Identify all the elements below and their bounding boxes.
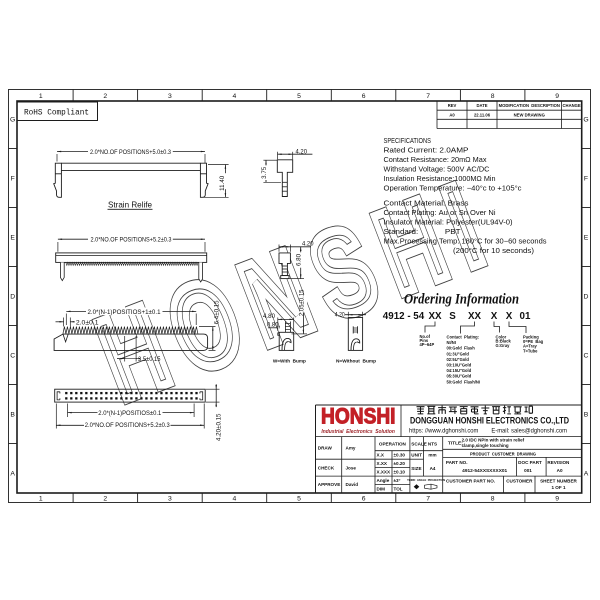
svg-text:Operation Temperature: −40°c t: Operation Temperature: −40°c to +105°c: [384, 184, 522, 193]
svg-text:E: E: [584, 234, 589, 241]
svg-text:5: 5: [297, 496, 301, 503]
svg-text:NTS: NTS: [428, 441, 437, 446]
svg-text:Contact Material: Brass: Contact Material: Brass: [384, 199, 469, 208]
svg-text:SHEET NUMBER: SHEET NUMBER: [540, 479, 577, 484]
svg-text:4912-54XXSXXXX01: 4912-54XXSXXXX01: [462, 468, 507, 473]
svg-text:X.XX: X.XX: [377, 461, 388, 466]
svg-text:Rated Current: 2.0AMP: Rated Current: 2.0AMP: [384, 146, 469, 155]
svg-text:SCALE: SCALE: [411, 441, 427, 446]
svg-text:UNIT: UNIT: [411, 453, 422, 458]
svg-text:F: F: [11, 175, 15, 182]
svg-text:7: 7: [426, 496, 430, 503]
svg-text:Insulation Resistance:1000MΩ M: Insulation Resistance:1000MΩ Min: [384, 174, 496, 183]
svg-text:2.05±0.15: 2.05±0.15: [299, 289, 305, 316]
svg-text:2.0*(N-1)POSITIOS+1±0.1: 2.0*(N-1)POSITIOS+1±0.1: [88, 309, 162, 316]
svg-text:XX: XX: [428, 311, 442, 322]
svg-text:001: 001: [524, 468, 532, 473]
svg-text:F: F: [584, 175, 588, 182]
svg-text:3.75: 3.75: [261, 166, 268, 179]
svg-text:DATE: DATE: [476, 103, 487, 108]
svg-text:THIRD ANGLE PROJECTION: THIRD ANGLE PROJECTION: [407, 478, 445, 482]
svg-text:3: 3: [168, 496, 172, 503]
svg-text:4.20: 4.20: [302, 241, 314, 248]
svg-text:A0: A0: [449, 112, 455, 117]
svg-text:6: 6: [362, 496, 366, 503]
svg-text:C: C: [584, 352, 589, 359]
svg-text:CHECK: CHECK: [318, 465, 335, 470]
svg-text:(200°C for 10 seconds): (200°C for 10 seconds): [453, 246, 534, 255]
svg-text:CUSTOMER PART NO.: CUSTOMER PART NO.: [446, 479, 495, 484]
svg-text:Standard: PBT: Standard: PBT: [384, 227, 462, 236]
svg-text:NI/NI: NI/NI: [447, 340, 456, 345]
svg-text:8: 8: [491, 496, 495, 503]
svg-text:05:30U"Gold: 05:30U"Gold: [447, 374, 472, 379]
svg-text:01:3U"Gold: 01:3U"Gold: [447, 351, 470, 356]
svg-text:Jose: Jose: [346, 465, 357, 470]
svg-text:G: G: [583, 116, 588, 123]
svg-text:5: 5: [297, 93, 301, 100]
svg-text:1: 1: [39, 496, 43, 503]
svg-text:4: 4: [233, 496, 237, 503]
svg-text:50:Gold Flash/Ni: 50:Gold Flash/Ni: [447, 379, 480, 384]
svg-text:A: A: [584, 470, 589, 477]
svg-text:±0.30: ±0.30: [394, 453, 406, 458]
svg-text:NEW DRAWING: NEW DRAWING: [514, 112, 545, 117]
svg-text:3.5±0.15: 3.5±0.15: [138, 356, 161, 363]
svg-text:±0.10: ±0.10: [394, 470, 406, 475]
svg-text:Angle: Angle: [377, 478, 390, 483]
svg-text:00:Gold Flash: 00:Gold Flash: [447, 346, 476, 351]
svg-text:G:Gray: G:Gray: [496, 343, 511, 348]
svg-text:N=Without Bump: N=Without Bump: [336, 358, 376, 363]
svg-text:1: 1: [39, 93, 43, 100]
svg-text:A: A: [10, 470, 15, 477]
svg-text:3: 3: [168, 93, 172, 100]
svg-text:OPERATION: OPERATION: [379, 441, 407, 446]
svg-text:7: 7: [426, 93, 430, 100]
svg-text:2.0*NO.OF POSITIONS+5.0±0.3: 2.0*NO.OF POSITIONS+5.0±0.3: [90, 149, 171, 156]
svg-text:6.4±0.15: 6.4±0.15: [214, 300, 221, 325]
svg-text:2.0*NO.OF POSITIONS+5.2±0.3: 2.0*NO.OF POSITIONS+5.2±0.3: [85, 422, 171, 429]
svg-text:D: D: [10, 293, 15, 300]
svg-text:X: X: [506, 311, 513, 322]
svg-text:PRODUCT CUSTOMER DRAWING: PRODUCT CUSTOMER DRAWING: [470, 451, 536, 456]
svg-text:B: B: [584, 411, 589, 418]
svg-text:2.0*(N-1)POSITIOS±0.1: 2.0*(N-1)POSITIOS±0.1: [98, 411, 162, 417]
svg-text:G: G: [10, 116, 15, 123]
svg-text:B: B: [10, 411, 15, 418]
svg-text:Contact Resistance: 20mΩ Max: Contact Resistance: 20mΩ Max: [384, 155, 487, 164]
svg-text:CHANGE: CHANGE: [563, 103, 581, 108]
svg-text:REVISION: REVISION: [547, 460, 570, 465]
svg-text:SIZE: SIZE: [411, 466, 421, 471]
svg-text:4P~64P: 4P~64P: [420, 342, 435, 347]
svg-text:8: 8: [491, 93, 495, 100]
svg-text:RoHS Compliant: RoHS Compliant: [24, 107, 89, 117]
svg-text:22.11.06: 22.11.06: [474, 112, 491, 117]
svg-text:2.0*NO.OF POSITIONS+5.2±0.3: 2.0*NO.OF POSITIONS+5.2±0.3: [91, 237, 172, 244]
svg-text:Insulator Material: Polyester(: Insulator Material: Polyester(UL94V-0): [384, 218, 513, 227]
svg-text:01: 01: [520, 311, 531, 322]
svg-text:02:5U"Gold: 02:5U"Gold: [447, 357, 470, 362]
svg-text:D: D: [584, 293, 589, 300]
svg-text:9: 9: [555, 93, 559, 100]
svg-text:CUSTOMER: CUSTOMER: [506, 479, 533, 484]
svg-text:2.0±0.1: 2.0±0.1: [76, 319, 99, 326]
svg-text:Withstand Voltage: 500V AC/DC: Withstand Voltage: 500V AC/DC: [384, 165, 490, 174]
svg-text:11.40: 11.40: [219, 175, 226, 191]
svg-text:4.80: 4.80: [263, 314, 276, 320]
svg-text:David: David: [346, 482, 359, 487]
svg-text:Contact Plating:: Contact Plating:: [447, 335, 480, 340]
svg-text:1 OF 1: 1 OF 1: [551, 485, 565, 490]
svg-text:A4: A4: [430, 466, 436, 471]
svg-text:clamp,single touching: clamp,single touching: [462, 443, 509, 448]
svg-text:6: 6: [362, 93, 366, 100]
svg-text:X.XXX: X.XXX: [377, 470, 391, 475]
svg-text:4912 - 54: 4912 - 54: [383, 311, 425, 322]
svg-text:S: S: [449, 311, 456, 322]
svg-text:XX: XX: [468, 311, 482, 322]
svg-text:Ordering Information: Ordering Information: [404, 291, 519, 307]
svg-text:APPROVE: APPROVE: [318, 482, 340, 487]
svg-text:2: 2: [103, 496, 107, 503]
svg-text:2.0 IDC NPin with strain relie: 2.0 IDC NPin with strain relief: [462, 438, 525, 443]
svg-text:Industrial Electronics Solut: Industrial Electronics Solution: [321, 429, 395, 435]
svg-text:REV: REV: [448, 103, 457, 108]
svg-text:TOL: TOL: [394, 486, 403, 491]
svg-text:T=Tube: T=Tube: [523, 348, 538, 353]
svg-text:9: 9: [555, 496, 559, 503]
svg-text:04:15U"Gold: 04:15U"Gold: [447, 368, 472, 373]
svg-text:Strain Relife: Strain Relife: [108, 200, 152, 209]
svg-text:DONGGUAN HONSHI ELECTRONICS CO: DONGGUAN HONSHI ELECTRONICS CO.,LTD: [410, 415, 569, 425]
svg-text:HONSHI: HONSHI: [321, 403, 396, 428]
svg-text:DOC PART: DOC PART: [518, 460, 542, 465]
svg-text:4.20: 4.20: [335, 313, 346, 319]
svg-text:±0.20: ±0.20: [394, 461, 406, 466]
svg-text:2: 2: [103, 93, 107, 100]
svg-text:SPECIFICATIONS: SPECIFICATIONS: [384, 136, 432, 145]
svg-text:DRAW: DRAW: [318, 446, 333, 451]
svg-text:E: E: [10, 234, 15, 241]
svg-text:4: 4: [233, 93, 237, 100]
svg-text:Max.Processing Temp: 180°C for: Max.Processing Temp: 180°C for 30−60 sec…: [384, 237, 547, 246]
svg-text:DIM: DIM: [377, 486, 386, 491]
svg-text:https: //www.dghonshi.com: https: //www.dghonshi.com E-mail: sales@…: [409, 429, 567, 435]
svg-text:MODIFICATION DESCRIPTION: MODIFICATION DESCRIPTION: [499, 103, 560, 108]
svg-text:4.20: 4.20: [296, 148, 308, 155]
svg-text:mm: mm: [428, 453, 436, 458]
svg-text:X.X: X.X: [377, 453, 385, 458]
svg-text:A0: A0: [557, 468, 563, 473]
svg-text:0.80: 0.80: [267, 323, 280, 329]
svg-text:6.80: 6.80: [296, 253, 303, 266]
svg-text:X: X: [491, 311, 498, 322]
svg-text:W=With Bump: W=With Bump: [273, 358, 306, 363]
svg-text:03:10U"Gold: 03:10U"Gold: [447, 363, 472, 368]
svg-text:±3°: ±3°: [394, 478, 401, 483]
svg-text:Amy: Amy: [346, 446, 356, 451]
svg-text:C: C: [10, 352, 15, 359]
svg-text:4.20±0.15: 4.20±0.15: [216, 413, 223, 441]
svg-text:Contact Plating: Au or Sn Over: Contact Plating: Au or Sn Over Ni: [384, 208, 496, 217]
svg-text:PART NO.: PART NO.: [446, 460, 468, 465]
